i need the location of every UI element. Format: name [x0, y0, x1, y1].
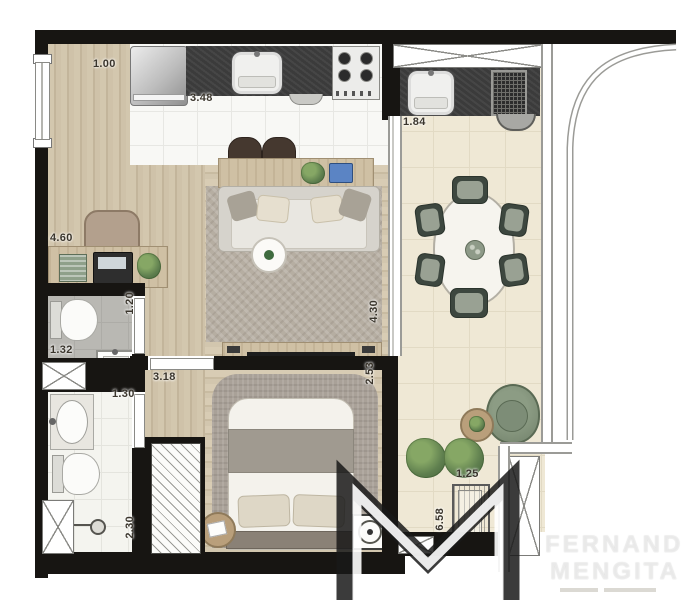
- burner-icon: [360, 69, 373, 82]
- watermark-tagline: [560, 588, 598, 592]
- side-table-plant: [469, 416, 485, 432]
- chair-seat: [455, 293, 483, 313]
- desk-plant: [137, 253, 161, 279]
- desk: [48, 246, 168, 288]
- dim-balcony-length: 6.58: [434, 508, 446, 531]
- table-centerpiece: [465, 240, 485, 260]
- barbecue-grill: [491, 70, 527, 116]
- vanity-basin: [56, 400, 88, 444]
- bed-pillow: [237, 494, 290, 528]
- notebook: [59, 254, 87, 282]
- facade-curve-outline: [570, 47, 676, 440]
- coffee-table: [251, 237, 287, 273]
- toilet: [60, 299, 98, 341]
- bathroom2-door: [134, 394, 145, 448]
- sofa: [218, 186, 380, 252]
- balcony-window-hatch: [393, 44, 542, 68]
- exterior-column-hatch: [508, 456, 540, 556]
- shaft-hatch: [42, 500, 74, 554]
- facade-curve-fill: [570, 47, 676, 440]
- facade-line-lower: [498, 446, 510, 572]
- dim-bath1-width: 1.32: [50, 344, 73, 356]
- wall-bottom: [35, 552, 405, 574]
- fan-hub: [367, 529, 373, 535]
- dining-chair: [414, 252, 446, 288]
- burner-icon: [360, 52, 373, 65]
- glass-sliding-door: [388, 116, 402, 356]
- dim-bath2-length: 2.30: [124, 516, 136, 539]
- dining-chair: [414, 202, 446, 238]
- watermark-name-line1: FERNANDO: [545, 531, 681, 559]
- bedroom-door: [150, 358, 214, 370]
- balcony-plant: [406, 438, 446, 478]
- window-glass-line: [41, 63, 43, 139]
- bed-pillow: [292, 494, 345, 528]
- wardrobe-hatch: [151, 443, 201, 554]
- chair-seat: [504, 258, 525, 282]
- balcony-railing: [541, 44, 553, 446]
- speaker: [227, 346, 240, 353]
- dim-ac-width: 1.25: [456, 468, 479, 480]
- bar-laptop: [329, 163, 353, 183]
- sink-faucet-icon: [112, 349, 118, 355]
- speaker: [362, 346, 375, 353]
- burner-icon: [338, 69, 351, 82]
- fridge-handle: [133, 94, 185, 101]
- shower-head-icon: [90, 519, 106, 535]
- wall-bedroom-balcony: [382, 356, 398, 536]
- sink-faucet-icon: [49, 418, 56, 425]
- wall-top: [35, 30, 676, 44]
- dim-bedroom-width: 2.53: [364, 362, 376, 385]
- bar-counter: [218, 158, 374, 188]
- dining-chair: [498, 252, 530, 288]
- side-table: [460, 408, 494, 442]
- dining-chair: [450, 288, 488, 318]
- dim-office-width: 1.00: [93, 58, 116, 70]
- burner-icon: [338, 52, 351, 65]
- laptop: [93, 252, 133, 284]
- balcony-sink: [408, 71, 454, 115]
- armchair-cushion: [496, 400, 528, 432]
- dim-hall-width: 3.18: [153, 371, 176, 383]
- watermark-tagline: [604, 588, 656, 592]
- dim-balcony-counter: 1.84: [403, 116, 426, 128]
- fridge: [130, 46, 188, 106]
- watermark-name-line2: MENGITA: [550, 558, 680, 586]
- bedside-papers: [207, 520, 228, 537]
- vanity: [50, 394, 94, 450]
- armchair: [486, 384, 540, 444]
- sofa-pillow: [256, 194, 291, 223]
- bar-plant: [301, 162, 325, 184]
- wall-vent-hatch: [398, 536, 434, 554]
- sink-faucet-icon: [428, 70, 434, 76]
- stove: [332, 46, 380, 100]
- floor-plan: 1.00 3.48 4.60 1.84 1.20 1.32 3.18 1.30 …: [0, 0, 681, 600]
- sink-basin: [414, 97, 448, 109]
- bed: [228, 398, 354, 550]
- coffee-table-plant: [264, 250, 274, 260]
- chair-seat: [457, 181, 483, 199]
- chair-seat: [420, 258, 441, 282]
- dim-bath2-door: 1.30: [112, 388, 135, 400]
- sink-basin: [238, 76, 276, 88]
- stove-knobs: [336, 91, 374, 96]
- chair-seat: [420, 208, 441, 232]
- chair-seat: [504, 208, 525, 232]
- dim-living-length: 4.30: [368, 300, 380, 323]
- dim-kitchen-width: 3.48: [190, 92, 213, 104]
- dining-chair: [498, 202, 530, 238]
- glass-mullion: [392, 116, 394, 356]
- bed-headboard: [226, 531, 358, 549]
- dim-bath1-door: 1.20: [124, 292, 136, 315]
- kitchen-sink: [232, 52, 282, 94]
- toilet: [62, 453, 100, 495]
- dim-office-length: 4.60: [50, 232, 73, 244]
- shaft-hatch: [42, 362, 86, 390]
- window: [35, 62, 50, 140]
- dining-chair: [452, 176, 488, 204]
- sink-faucet-icon: [254, 51, 260, 57]
- bed-blanket: [228, 429, 354, 473]
- laptop-screen: [98, 257, 126, 269]
- railing-step: [500, 442, 572, 454]
- bedside-table: [200, 512, 236, 548]
